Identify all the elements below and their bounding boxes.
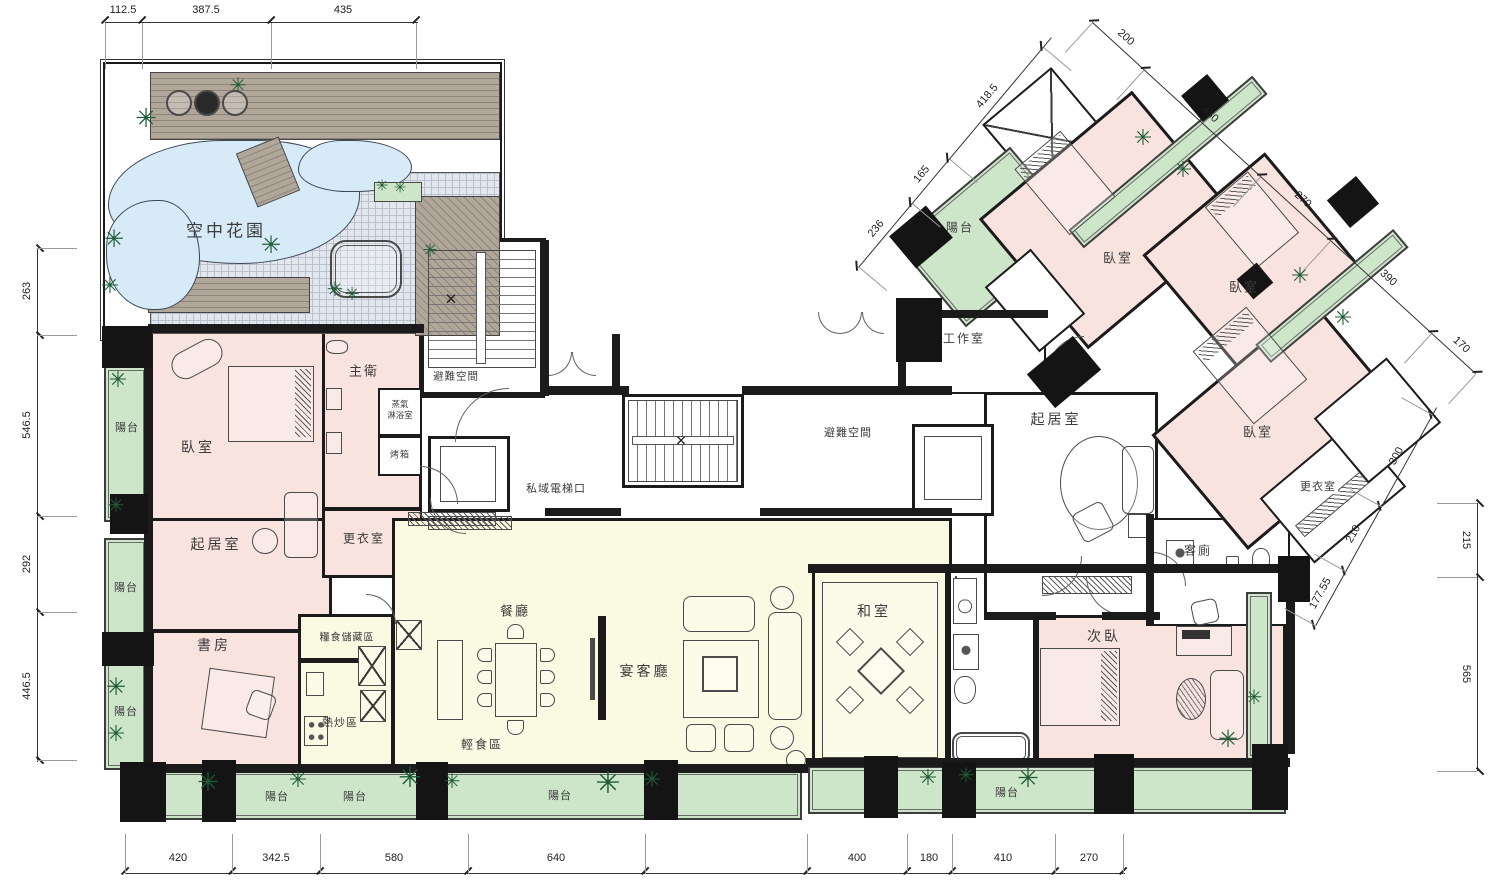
room-label-bedroom-wing-c: 臥室 [1243,422,1273,441]
room-label-refuge-left: 避難空間 [431,369,481,384]
round-side-table [770,726,794,750]
plant-icon: ✳ [1218,728,1238,752]
plant-icon: ✳ [230,76,247,96]
wall-segment [984,612,1056,620]
room-label-bedroom-wing-b: 臥室 [1229,277,1259,296]
armchair [686,724,716,752]
dim-extension-line [37,516,77,517]
dim-tick [1039,40,1041,50]
dim-label: 292 [21,555,33,573]
washer [953,578,977,624]
bath-vanity [326,432,342,454]
room-label-private-elevator: 私域電梯口 [526,480,586,496]
toilet [954,676,976,704]
sofa-living-left [284,492,318,558]
room-label-wing-balcony: 陽台 [946,219,974,236]
garden-planter [166,90,192,116]
dim-extension-line [320,834,321,874]
dim-extension-line [859,267,887,291]
dim-tick [1328,237,1338,239]
dining-chair [477,648,492,662]
dining-table [495,643,537,717]
dim-extension-line [645,834,646,874]
dim-extension-line [37,248,77,249]
dim-extension-line [37,612,77,613]
room-label-dressing-left: 更衣室 [343,530,385,547]
dim-extension-line [37,760,77,761]
dim-label: 215 [1460,531,1472,549]
dining-chair [540,670,555,684]
wall-pier [102,326,152,368]
room-label-study: 書房 [197,635,231,655]
room-label-dining: 餐廳 [500,601,530,620]
plant-icon: ✳ [643,769,661,791]
kitchen-cabinet [360,690,386,722]
door-arc [818,312,840,334]
dim-tick [1089,19,1099,21]
room-label-tatami: 和室 [857,601,891,621]
wall-pier [896,298,942,362]
plant-icon: ✳ [289,769,307,791]
plant-icon: ✳ [108,496,125,516]
dim-chain-top [105,14,418,30]
room-label-dressing-wing: 更衣室 [1298,478,1338,494]
wall-segment [540,240,549,396]
dim-extension-line [1404,333,1432,363]
bed-second [1040,648,1120,726]
stair-rail [476,252,486,364]
room-label-master-bath: 主衛 [349,361,379,380]
kitchen-cabinet [396,620,422,650]
dim-extension-line [105,23,106,69]
room-label-light-meal: 輕食區 [461,736,503,753]
elevator-right-car [924,436,982,500]
bed-master [228,366,314,442]
plant-icon: ✳ [104,228,124,252]
dim-extension-line [1055,834,1056,874]
dim-label: 236 [866,218,887,240]
dim-label: 420 [169,852,187,864]
room-label-refuge-right: 避難空間 [824,424,872,440]
dim-tick [1477,767,1485,775]
loveseat [683,596,755,632]
round-side-table [770,586,794,610]
wall-segment [144,330,152,766]
coffee-table [702,656,738,692]
wall-segment [742,386,952,395]
room-label-master-bedroom: 臥室 [181,437,215,457]
room-label-workroom: 工作室 [943,330,985,347]
dim-label: 640 [547,852,565,864]
dim-tick [855,260,857,270]
dim-label: 270 [1080,852,1098,864]
dim-label: 170 [1450,334,1472,355]
dim-label: 580 [385,852,403,864]
dining-chair [477,693,492,707]
room-label-oven: 烤箱 [390,448,410,461]
floor-plan-canvas: 空中花園 × 避難空間 私域電梯口 × 避難空間 糧食 [0,0,1507,887]
balcony-label: 陽台 [548,787,572,803]
dim-label: 446.5 [21,672,33,700]
room-label-second-bedroom: 次臥 [1087,626,1121,646]
balcony-label: 陽台 [265,788,289,804]
room-label-living-left: 起居室 [191,534,242,554]
plant-icon: ✳ [398,764,421,792]
dim-label: 342.5 [262,852,290,864]
dim-extension-line [142,23,143,69]
wall-pier [1278,556,1310,602]
wall-segment [612,334,620,392]
room-label-living-right: 起居室 [1031,409,1082,429]
dim-extension-line [232,834,233,874]
plant-icon: ✳ [595,769,620,799]
dim-extension-line [1314,554,1346,572]
dim-label: 177.55 [1307,576,1334,611]
wall-segment [144,764,808,773]
room-label-banquet: 宴客廳 [620,661,671,681]
plant-icon: ✳ [327,280,344,300]
dim-tick [908,197,910,207]
dim-label: 410 [994,852,1012,864]
dim-extension-line [271,23,272,69]
dim-label: 263 [21,282,33,300]
tv-screen [590,638,595,700]
plant-icon: ✳ [197,769,219,795]
dim-label: 200 [1115,27,1137,48]
balcony-label: 陽台 [114,703,138,719]
plant-icon: ✳ [394,181,407,196]
wall-segment [148,324,424,333]
dim-tick [1429,330,1439,332]
dim-extension-line [468,834,469,874]
dim-extension-line [950,159,978,183]
dim-extension-line [1437,577,1477,578]
long-sofa [768,612,802,720]
plant-icon: ✳ [1134,127,1152,149]
plant-icon: ✳ [1246,688,1263,708]
dim-extension-line [1065,23,1093,53]
garden-planter [194,90,220,116]
dim-chain-right [1470,503,1486,771]
room-label-wok: 熱炒區 [322,714,358,730]
plant-icon: ✳ [135,105,157,131]
dim-extension-line [1448,374,1476,404]
vanity [953,634,979,670]
plant-icon: ✳ [1291,265,1309,287]
oval-rug [1176,678,1206,720]
dim-extension-line [907,834,908,874]
wall-pier [120,762,166,822]
dining-chair [540,648,555,662]
wall-segment [948,564,1288,573]
dim-tick [1141,66,1151,68]
dim-extension-line [416,23,417,69]
plant-icon: ✳ [444,772,461,792]
wall-pier [864,756,898,818]
plant-icon: ✳ [919,767,937,789]
dim-extension-line [1437,771,1477,772]
central-corridor [545,336,955,518]
plant-icon: ✳ [1174,159,1192,181]
dim-label: 400 [848,852,866,864]
dim-label: 112.5 [110,4,137,16]
plant-icon: ✳ [958,766,975,786]
dining-chair [507,720,524,735]
plant-icon: ✳ [101,275,119,297]
door-arc [862,312,884,334]
wall-pier [102,632,154,666]
kitchen-sink [306,672,324,696]
dining-chair [540,693,555,707]
balcony-right-strip [1246,592,1272,760]
dim-extension-line [1437,503,1477,504]
room-label-sky-garden: 空中花園 [186,217,266,242]
dim-tick [1473,370,1483,372]
dim-extension-line [37,335,77,336]
stair-cross: × [676,431,689,452]
dim-tick [1477,573,1485,581]
sofa-living-right [1122,446,1154,514]
balcony-label: 陽台 [114,579,138,595]
dim-label: 565 [1460,665,1472,683]
dim-label: 418.5 [974,82,1001,111]
plant-icon: ✳ [376,179,389,194]
dim-extension-line [1123,834,1124,874]
wall-pier [1327,176,1379,228]
dim-tick [945,152,947,162]
balcony-label: 陽台 [995,784,1019,800]
kitchen-island [437,640,463,720]
wall-pier [1252,744,1288,810]
balcony-label: 陽台 [115,419,139,435]
dim-label: 165 [911,163,932,185]
door-arc [840,312,862,334]
dining-chair [477,670,492,684]
dim-tick [1257,173,1267,175]
room-label-pantry: 糧食儲藏區 [320,629,375,644]
armchair [724,724,754,752]
wall-segment [545,508,621,516]
wall-pier [1094,754,1134,814]
dim-label: 546.5 [21,411,33,439]
toilet [326,340,348,354]
plant-icon: ✳ [107,723,125,745]
wall-segment [808,564,948,573]
dim-chain-bottom [125,865,1125,881]
dim-extension-line [125,834,126,874]
dim-label: 387.5 [192,4,220,16]
closet-hatch [955,576,957,578]
kitchen-cabinet [358,646,386,686]
tv-wall [598,616,606,720]
dining-chair [507,624,524,639]
room-label-bedroom-wing-a: 臥室 [1103,248,1133,267]
room-label-steam-2: 淋浴室 [387,409,413,421]
dim-tick [1477,499,1485,507]
room-label-guest-toilet: 客廁 [1184,542,1212,559]
plant-icon: ✳ [109,369,127,391]
balcony-label: 陽台 [343,788,367,804]
bath-vanity [326,388,342,410]
dim-extension-line [807,834,808,874]
wall-segment [1146,514,1154,626]
side-table [252,528,278,554]
dim-extension-line [952,834,953,874]
plant-icon: ✳ [1334,307,1352,329]
plant-icon: ✳ [344,285,359,303]
kitchen-divider-wall [300,658,358,663]
stair-cross: × [445,289,459,312]
wall-segment [760,508,952,516]
dim-label: 435 [334,4,352,16]
plant-icon: ✳ [422,241,437,259]
plant-icon: ✳ [106,676,126,700]
dim-label: 180 [920,852,938,864]
plant-icon: ✳ [1017,765,1039,791]
desk-monitor [1182,630,1210,639]
